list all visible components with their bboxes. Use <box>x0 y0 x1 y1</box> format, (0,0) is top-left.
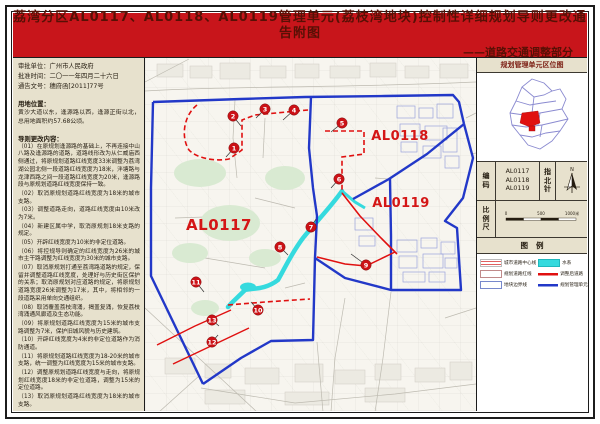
map-marker-12: 12 <box>207 335 218 347</box>
svg-text:0: 0 <box>504 211 507 216</box>
parcel-boundary-icon <box>480 281 502 289</box>
change-item: （09）将原规划道路红线宽度为15米的城市支路调整为7米，保护旧城风貌与历史建筑… <box>18 321 140 336</box>
water-icon <box>538 259 560 267</box>
svg-text:10: 10 <box>253 307 263 315</box>
change-item: （01）在原规划逢源路的基础上，不再连接中山八路及逢源路的道路，道路线形改为从仁… <box>18 144 140 190</box>
change-item: （06）将控规导则确定的红线宽度为26米的城市主干路调整为红线宽度为30米的城市… <box>18 249 140 264</box>
map-marker-11: 11 <box>191 277 204 292</box>
unit-boundary-icon <box>538 282 558 288</box>
legend-item: 水系 <box>538 259 588 267</box>
unit-code: AL0117 <box>506 168 530 177</box>
svg-text:1: 1 <box>232 145 237 153</box>
label-al0118: AL0118 <box>371 129 429 144</box>
city-blocks <box>157 63 472 405</box>
map-marker-5: 5 <box>331 118 347 132</box>
change-item: （04）新建区属中学，取消原规划18米支路的规定。 <box>18 224 140 239</box>
scale-bar: 0 500 1000米 <box>500 209 584 229</box>
title-bar: 荔湾分区AL0117、AL0118、AL0119管理单元(荔枝湾地块)控制性详细… <box>13 13 587 58</box>
svg-text:6: 6 <box>337 176 342 184</box>
svg-text:1000米: 1000米 <box>564 210 578 216</box>
svg-text:11: 11 <box>191 279 201 287</box>
code-label: 编码 <box>482 172 490 190</box>
map-marker-2: 2 <box>228 111 241 126</box>
change-item: （02）取消原规划道路红线宽度为18米的城市支路。 <box>18 191 140 206</box>
unit-code: AL0118 <box>506 177 530 186</box>
adjusted-roads <box>157 105 397 364</box>
svg-text:4: 4 <box>292 107 297 115</box>
map-marker-7: 7 <box>306 219 316 232</box>
map-marker-3: 3 <box>256 104 270 118</box>
legend-box: 城市道路中心线 水系 规划道路红线 调整后道路 地块边界线 <box>477 253 587 411</box>
map-canvas: AL0117 AL0118 AL0119 1 2 3 <box>145 58 476 411</box>
map-marker-10: 10 <box>251 302 263 315</box>
right-info-panel: 规划管理单元区位图 <box>476 58 587 411</box>
svg-text:9: 9 <box>364 262 369 270</box>
change-item: （03）调整道路走向，道路红线宽度由10米改为7米。 <box>18 207 140 222</box>
page-title: 荔湾分区AL0117、AL0118、AL0119管理单元(荔枝湾地块)控制性详细… <box>13 10 587 41</box>
scale-label: 比例尺 <box>482 206 490 232</box>
svg-text:N: N <box>570 167 574 173</box>
svg-text:12: 12 <box>207 339 216 347</box>
unit-code: AL0119 <box>506 185 530 194</box>
adjusted-road-icon <box>538 271 558 277</box>
change-item: （07）取消原规划打通至荔湾路道路的规定，保留并调整道路红线宽度，处理好与历史街… <box>18 265 140 303</box>
north-arrow-icon: N <box>560 165 584 197</box>
main-row: 审批单位：广州市人民政府 批准时间：二〇一一年四月二十六日 通告文号：穗府函[2… <box>13 58 587 411</box>
road-redline-icon <box>480 270 502 278</box>
changes-heading: 导则更改内容： <box>18 134 140 143</box>
legend-item: 城市道路中心线 <box>480 259 536 267</box>
map-marker-9: 9 <box>351 254 371 270</box>
change-item: （11）将原规划道路红线宽度为18-20米的城市支路，统一调整为红线宽度为15米… <box>18 354 140 369</box>
locator-highlight <box>520 111 540 131</box>
locator-map <box>477 72 587 162</box>
change-item: （08）取消覆盖荔枝湾涌，揭盖复涌，恢复荔枝湾涌通风廊道及生态功能。 <box>18 305 140 320</box>
label-al0117: AL0117 <box>186 216 252 234</box>
location-heading: 用地位置： <box>18 99 140 108</box>
svg-text:500: 500 <box>537 211 545 216</box>
left-text-panel: 审批单位：广州市人民政府 批准时间：二〇一一年四月二十六日 通告文号：穗府函[2… <box>13 58 145 411</box>
approval-line: 审批单位：广州市人民政府 <box>18 62 140 72</box>
svg-text:8: 8 <box>278 244 283 252</box>
change-item: （05）开辟红线宽度为10米的非定位道路。 <box>18 240 140 248</box>
planning-map: AL0117 AL0118 AL0119 1 2 3 <box>145 58 476 411</box>
north-label: 指北针 <box>543 168 551 194</box>
legend-item: 规划道路红线 <box>480 270 536 278</box>
svg-text:5: 5 <box>340 120 345 128</box>
legend-item: 规划管理单元 <box>538 281 588 289</box>
svg-text:3: 3 <box>263 106 268 114</box>
approval-line: 通告文号：穗府函[2011]77号 <box>18 82 140 92</box>
map-marker-4: 4 <box>283 105 299 120</box>
legend-title: 图例 <box>477 238 587 253</box>
park-areas <box>172 159 305 316</box>
lizhiwan-creek <box>228 191 365 307</box>
svg-text:2: 2 <box>231 113 236 121</box>
code-table: 编码 AL0117 AL0118 AL0119 指北针 N <box>477 162 587 201</box>
plan-notice-sheet: 荔湾分区AL0117、AL0118、AL0119管理单元(荔枝湾地块)控制性详细… <box>0 0 600 424</box>
unit-codes: AL0117 AL0118 AL0119 <box>496 162 540 200</box>
content-area: 荔湾分区AL0117、AL0118、AL0119管理单元(荔枝湾地块)控制性详细… <box>13 13 587 411</box>
location-text: 黄沙大道以东，逢源路以西，逢源正街以北，总用地面积约57.68公顷。 <box>18 109 140 126</box>
change-item: （13）取消原规划道路红线宽度为18米的城市支路。 <box>18 394 140 409</box>
legend-item: 调整后道路 <box>538 270 588 278</box>
label-al0119: AL0119 <box>372 196 430 211</box>
locator-title: 规划管理单元区位图 <box>477 58 587 72</box>
change-item: （10）开辟红线宽度为4米的非定位道路作为消防通道。 <box>18 337 140 352</box>
legend-item: 地块边界线 <box>480 281 536 289</box>
approval-line: 批准时间：二〇一一年四月二十六日 <box>18 72 140 82</box>
scale-row: 比例尺 0 500 1000米 <box>477 201 587 238</box>
change-item: （12）调整原规划道路红线宽度与走向，将原规划红线宽度18米的非定位道路，调整为… <box>18 370 140 393</box>
road-centerline-icon <box>480 259 502 267</box>
svg-text:13: 13 <box>207 317 216 325</box>
map-marker-1: 1 <box>226 143 239 157</box>
changes-list: （01）在原规划逢源路的基础上，不再连接中山八路及逢源路的道路，道路线形改为从仁… <box>18 144 140 410</box>
svg-text:7: 7 <box>309 224 314 232</box>
locator-map-canvas <box>482 75 582 159</box>
